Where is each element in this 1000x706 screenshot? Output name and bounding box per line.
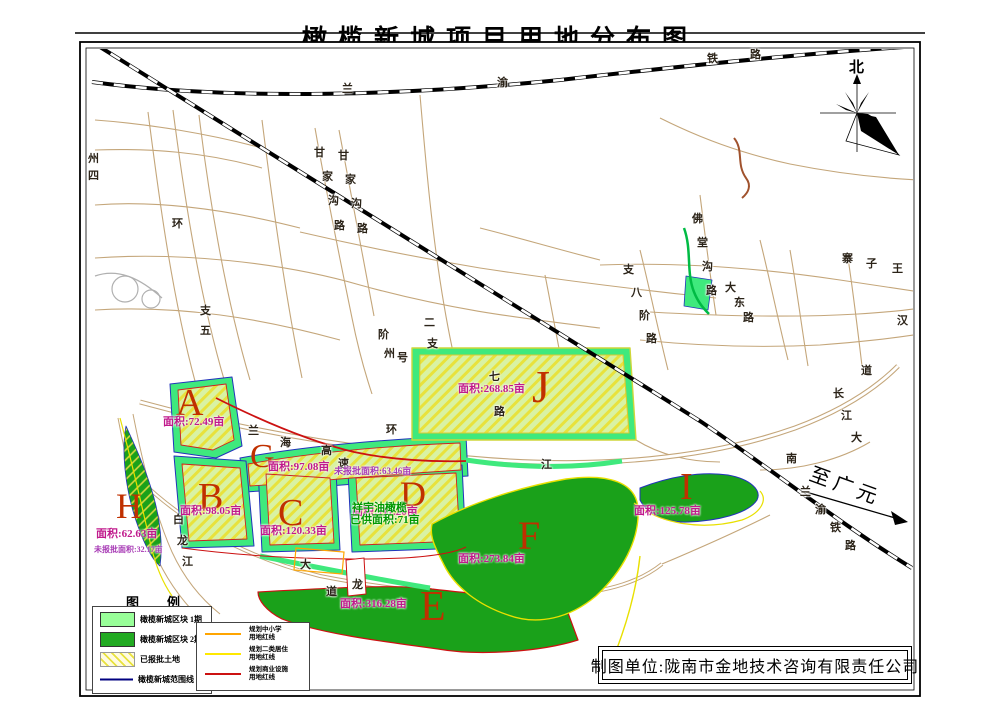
road-label: 高	[321, 446, 332, 457]
road-label: 路	[494, 407, 505, 418]
north-label: 北	[849, 56, 864, 77]
road-label: 支	[427, 339, 438, 350]
road-label: 佛	[692, 214, 703, 225]
road-label: 二	[424, 318, 435, 329]
road-label: 支	[623, 265, 634, 276]
road-label: 兰	[800, 487, 811, 498]
zone-letter: J	[532, 364, 550, 410]
road-label: 道	[326, 587, 337, 598]
legend-line-swatch	[205, 633, 241, 635]
zone-letter: F	[518, 516, 540, 556]
road-label: 铁	[707, 54, 718, 65]
legend-swatch	[100, 652, 135, 667]
zone-letter: H	[116, 488, 142, 524]
legend-line-label: 规划中小学用地红线	[249, 626, 282, 642]
road-label: 五	[200, 326, 211, 337]
road-label: 阶	[639, 311, 650, 322]
legend-label: 已报批土地	[140, 654, 180, 665]
road-label: 海	[280, 438, 291, 449]
page: 橄榄新城项目用地分布图	[0, 0, 1000, 706]
zone-area-label: 面积:273.84亩	[458, 554, 525, 565]
road-label: 堂	[697, 238, 708, 249]
road-label: 八	[631, 288, 642, 299]
road-label: 寨	[842, 254, 853, 265]
legend-panel-right: 规划中小学用地红线 规划二类居住用地红线 规划商业设施用地红线	[196, 622, 310, 691]
legend-label: 橄榄新城区块 1期	[140, 614, 202, 625]
road-label: 沟	[702, 262, 713, 273]
legend-row: 橄榄新城范围线	[93, 669, 211, 689]
road-label: 南	[786, 454, 797, 465]
road-label: 道	[861, 366, 872, 377]
road-label: 沟	[351, 199, 362, 210]
legend-swatch	[100, 632, 135, 647]
road-label: 号	[397, 353, 408, 364]
legend-label: 橄榄新城范围线	[138, 674, 194, 685]
legend-line-label: 规划二类居住用地红线	[249, 646, 288, 662]
road-label: 七	[489, 372, 500, 383]
legend-swatch	[100, 612, 135, 627]
zone-letter: I	[680, 468, 693, 506]
road-label: 支	[200, 306, 211, 317]
legend-row: 已报批土地	[93, 649, 211, 669]
road-label: 环	[386, 425, 397, 436]
road-label: 江	[541, 460, 552, 471]
legend-panel-left: 橄榄新城区块 1期 橄榄新城区块 2期 已报批土地 橄榄新城范围线	[92, 606, 212, 694]
road-label: 大	[725, 283, 736, 294]
road-label: 路	[334, 221, 345, 232]
map-note: 已供面积:71亩	[350, 514, 420, 526]
legend-line-label: 规划商业设施用地红线	[249, 666, 288, 682]
zone-area-label: 面积:268.85亩	[458, 384, 525, 395]
zone-area-label: 面积:72.49亩	[163, 417, 224, 428]
road-label: 家	[322, 172, 333, 183]
legend-line-swatch	[205, 653, 241, 655]
legend-line-row: 规划中小学用地红线	[197, 624, 309, 644]
road-label: 路	[706, 286, 717, 297]
road-label: 大	[300, 560, 311, 571]
road-label: 汉	[897, 316, 908, 327]
company-box: 制图单位:陇南市金地技术咨询有限责任公司	[598, 646, 912, 684]
map-note: 祥宇油橄榄	[352, 502, 407, 514]
legend-swatch	[100, 673, 133, 686]
road-label: 环	[172, 219, 183, 230]
road-label: 江	[841, 411, 852, 422]
legend-line-row: 规划商业设施用地红线	[197, 664, 309, 684]
legend-row: 橄榄新城区块 2期	[93, 629, 211, 649]
legend-line-row: 规划二类居住用地红线	[197, 644, 309, 664]
zone-area-label: 面积:120.33亩	[260, 526, 327, 537]
zone-area-label: 面积:125.78亩	[634, 506, 701, 517]
map-note: 未报批面积:63.46亩	[334, 467, 411, 477]
road-label: 子	[866, 259, 877, 270]
road-label: 甘	[338, 151, 349, 162]
legend-row: 橄榄新城区块 1期	[93, 609, 211, 629]
road-label: 长	[833, 389, 844, 400]
zone-letter: E	[420, 586, 446, 628]
zone-area-label: 面积:98.05亩	[180, 506, 241, 517]
road-label: 阶	[378, 330, 389, 341]
road-label: 王	[892, 264, 903, 275]
road-label: 铁	[830, 523, 841, 534]
road-label: 路	[646, 334, 657, 345]
map-note: 未报批面积:32.17亩	[94, 546, 163, 555]
legend-label: 橄榄新城区块 2期	[140, 634, 202, 645]
road-label: 路	[357, 224, 368, 235]
zone-area-label: 面积:97.08亩	[268, 462, 329, 473]
road-label: 路	[845, 541, 856, 552]
road-label: 东	[734, 298, 745, 309]
road-label: 龙	[177, 536, 188, 547]
road-label: 兰	[342, 84, 353, 95]
road-label: 渝	[497, 78, 508, 89]
road-label: 江	[182, 557, 193, 568]
road-label: 州	[88, 154, 99, 165]
road-label: 龙	[352, 580, 363, 591]
company-box-text: 制图单位:陇南市金地技术咨询有限责任公司	[602, 650, 908, 680]
road-label: 甘	[314, 148, 325, 159]
zone-area-label: 面积:316.28亩	[340, 599, 407, 610]
road-label: 四	[88, 171, 99, 182]
road-label: 州	[384, 349, 395, 360]
road-label: 沟	[328, 196, 339, 207]
road-label: 路	[743, 313, 754, 324]
zone-area-label: 面积:62.63亩	[96, 529, 157, 540]
road-label: 路	[750, 50, 761, 61]
road-label: 大	[851, 433, 862, 444]
road-label: 兰	[248, 426, 259, 437]
legend-line-swatch	[205, 673, 241, 675]
road-label: 渝	[815, 505, 826, 516]
road-label: 家	[345, 175, 356, 186]
